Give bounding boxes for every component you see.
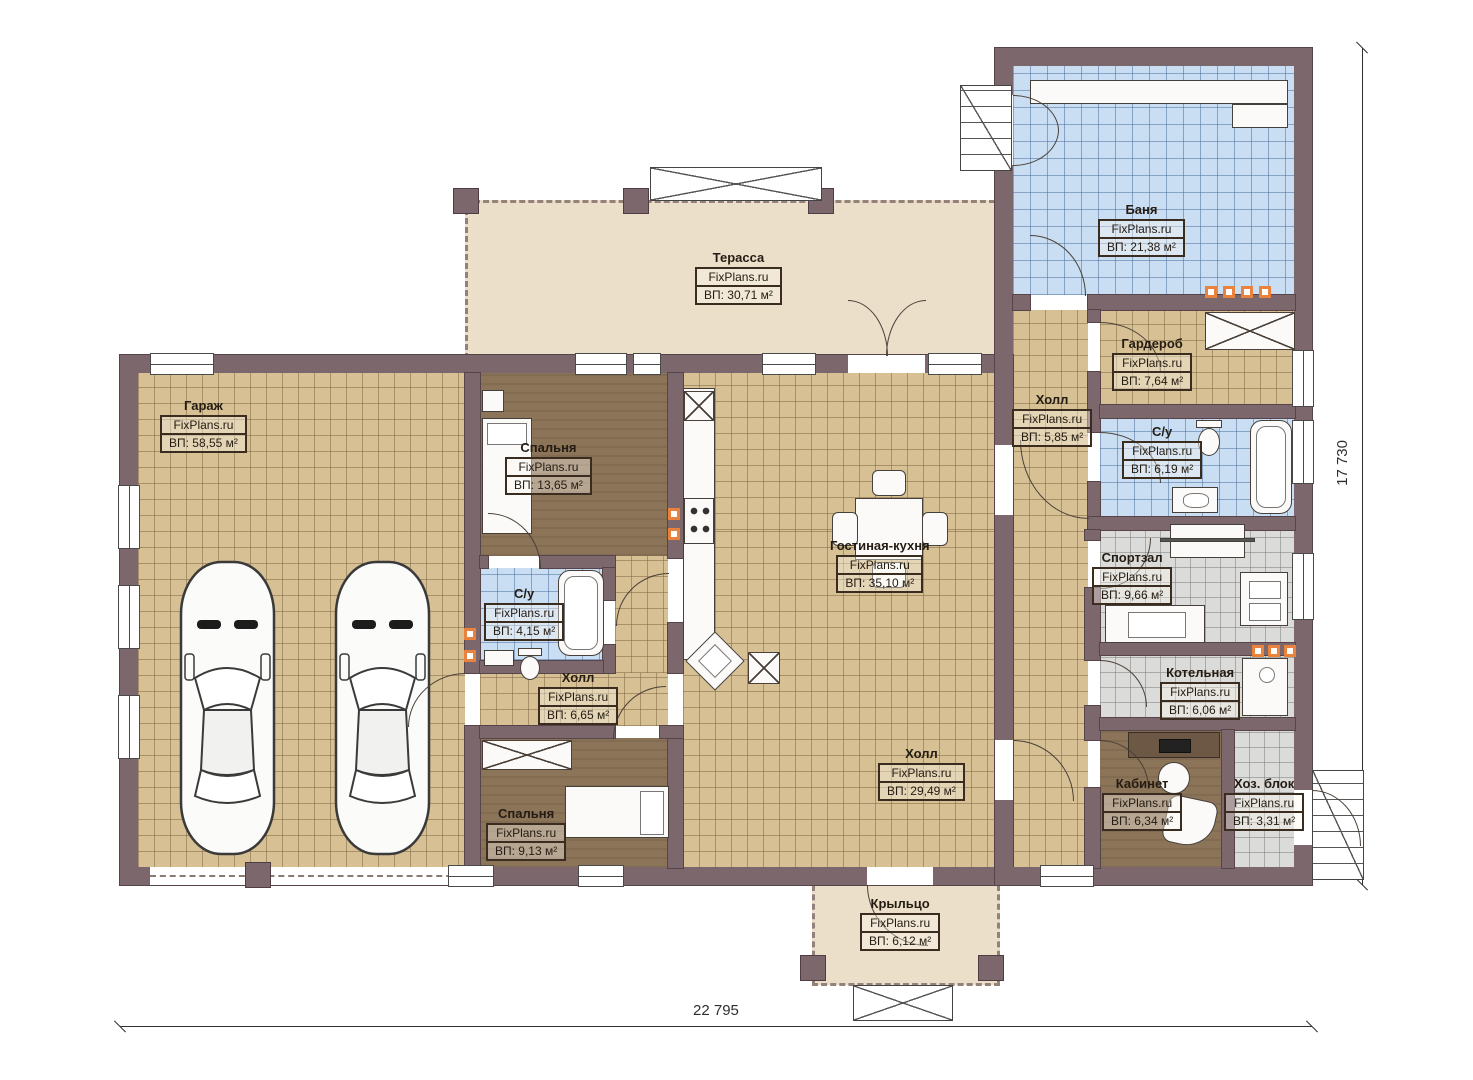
terrace-door-opening <box>848 355 925 373</box>
stove <box>684 498 714 544</box>
bathtub-basin <box>1256 426 1286 508</box>
wall-corridor-gym-c <box>1085 706 1100 740</box>
room-label-boiler: Котельная FixPlans.ruВП: 6,06 м² <box>1160 665 1240 720</box>
wardrobe-cabinet <box>1205 312 1295 350</box>
window <box>762 353 816 375</box>
wall-hall2-a <box>1088 310 1100 322</box>
wall-su1-right-b <box>603 645 615 673</box>
vent-marker <box>1241 286 1253 298</box>
bathtub-basin <box>564 576 598 650</box>
room-label-wardrobe: Гардероб FixPlans.ruВП: 7,64 м² <box>1112 336 1192 391</box>
island-top <box>698 644 732 678</box>
window <box>633 353 661 375</box>
wall-garage-bedrooms-b <box>465 726 480 868</box>
dimension-line-right <box>1362 48 1363 885</box>
window <box>1040 865 1094 887</box>
wall-hall1-bed2-a <box>480 726 615 738</box>
monitor <box>1159 739 1191 753</box>
room-label-porch: Крыльцо FixPlans.ruВП: 6,12 м² <box>860 896 940 951</box>
vent-marker <box>1223 286 1235 298</box>
wall-bed1-su1-a <box>480 556 488 568</box>
terrace-column <box>453 188 479 214</box>
room-label-bathroom-small: С/у FixPlans.ruВП: 4,15 м² <box>484 586 564 641</box>
window <box>928 353 982 375</box>
wall-bed1-su1-b <box>540 556 615 568</box>
room-label-bedroom-bottom: Спальня FixPlans.ruВП: 9,13 м² <box>486 806 566 861</box>
gym-machine-pad <box>1249 603 1281 621</box>
wall-bedrooms-living-c <box>668 726 683 868</box>
room-label-bathroom-right: С/у FixPlans.ruВП: 6,19 м² <box>1122 424 1202 479</box>
office-desk <box>1128 732 1220 758</box>
window <box>150 353 214 375</box>
vent-marker <box>1268 645 1280 657</box>
window <box>575 353 627 375</box>
window <box>118 585 140 649</box>
room-label-banya: Баня FixPlans.ruВП: 21,38 м² <box>1098 202 1185 257</box>
dimension-height-label: 17 730 <box>1334 440 1351 486</box>
room-label-hall-right: Холл FixPlans.ruВП: 5,85 м² <box>1012 392 1092 447</box>
floor-plan: Гараж FixPlans.ruВП: 58,55 м² Спальня Fi… <box>0 0 1473 1080</box>
room-label-garage: Гараж FixPlans.ruВП: 58,55 м² <box>160 398 247 453</box>
boiler-unit <box>1242 658 1288 716</box>
window <box>1292 350 1314 407</box>
base-cabinet <box>748 652 780 684</box>
bathtub <box>1250 420 1292 514</box>
terrace-dashed-left <box>465 200 468 368</box>
sauna-entry-stairs <box>960 85 1012 171</box>
dimension-line-bottom <box>120 1026 1312 1027</box>
wall-gym-boiler <box>1100 643 1295 655</box>
treadmill-belt <box>1128 612 1186 638</box>
terrace-stairs <box>650 167 822 201</box>
sauna-bench-step <box>1232 104 1288 128</box>
wall-hall2-c <box>1088 482 1100 517</box>
wall-corridor-gym-a <box>1085 530 1100 540</box>
porch-column <box>978 955 1004 981</box>
gym-machine <box>1240 572 1288 626</box>
vent-marker <box>1205 286 1217 298</box>
vent-marker <box>1252 645 1264 657</box>
vent-marker <box>1284 645 1296 657</box>
window <box>578 865 624 887</box>
window <box>118 695 140 759</box>
gym-barbell <box>1160 538 1255 542</box>
vent-marker <box>668 508 680 520</box>
chair <box>872 470 906 496</box>
room-label-bedroom-top: Спальня FixPlans.ruВП: 13,65 м² <box>505 440 592 495</box>
garage-pier <box>245 862 271 888</box>
sauna-bench <box>1030 80 1288 104</box>
vent-marker <box>464 628 476 640</box>
sink <box>1172 487 1218 513</box>
wall-su1-right-a <box>603 568 615 600</box>
room-label-utility: Хоз. блок FixPlans.ruВП: 3,31 м² <box>1224 776 1304 831</box>
window <box>118 485 140 549</box>
wall-sauna-bottom-a <box>1013 295 1030 310</box>
vent-marker <box>668 528 680 540</box>
vent-marker <box>464 650 476 662</box>
front-door-opening <box>867 867 933 885</box>
gym-treadmill <box>1105 605 1205 643</box>
room-label-terrace: Терасса FixPlans.ruВП: 30,71 м² <box>695 250 782 305</box>
toilet-bowl <box>520 656 540 680</box>
room-label-office: Кабинет FixPlans.ruВП: 6,34 м² <box>1102 776 1182 831</box>
kitchen-sink <box>684 391 714 421</box>
wall-wardrobe-su2 <box>1100 405 1295 418</box>
sink-basin <box>1183 493 1209 508</box>
corridor-door-opening-b <box>995 740 1013 800</box>
garage-door-dashed <box>150 875 462 877</box>
wall-corridor-gym-d <box>1085 788 1100 868</box>
porch-column <box>800 955 826 981</box>
corridor-door-opening-a <box>995 445 1013 515</box>
room-label-gym: Спортзал FixPlans.ruВП: 9,66 м² <box>1092 550 1172 605</box>
terrace-column <box>623 188 649 214</box>
room-label-living-kitchen: Гостиная-кухня FixPlans.ruВП: 35,10 м² <box>830 538 930 593</box>
boiler-dial <box>1259 667 1275 683</box>
wardrobe-cabinet <box>482 740 572 770</box>
toilet <box>518 648 542 656</box>
bathtub <box>558 570 604 656</box>
vent-marker <box>1259 286 1271 298</box>
dimension-width-label: 22 795 <box>693 1002 739 1019</box>
nightstand <box>482 390 504 412</box>
room-label-hall-small: Холл FixPlans.ruВП: 6,65 м² <box>538 670 618 725</box>
car-icon <box>175 558 280 858</box>
room-label-hall-main: Холл FixPlans.ruВП: 29,49 м² <box>878 746 965 801</box>
porch-stairs <box>853 985 953 1021</box>
gym-machine-seat <box>1249 581 1281 599</box>
wall-bedrooms-living-b <box>668 623 683 673</box>
pillow <box>640 791 664 835</box>
window <box>1292 420 1314 484</box>
window <box>448 865 494 887</box>
bed <box>565 786 669 838</box>
window <box>1292 553 1314 620</box>
sink <box>484 650 514 666</box>
